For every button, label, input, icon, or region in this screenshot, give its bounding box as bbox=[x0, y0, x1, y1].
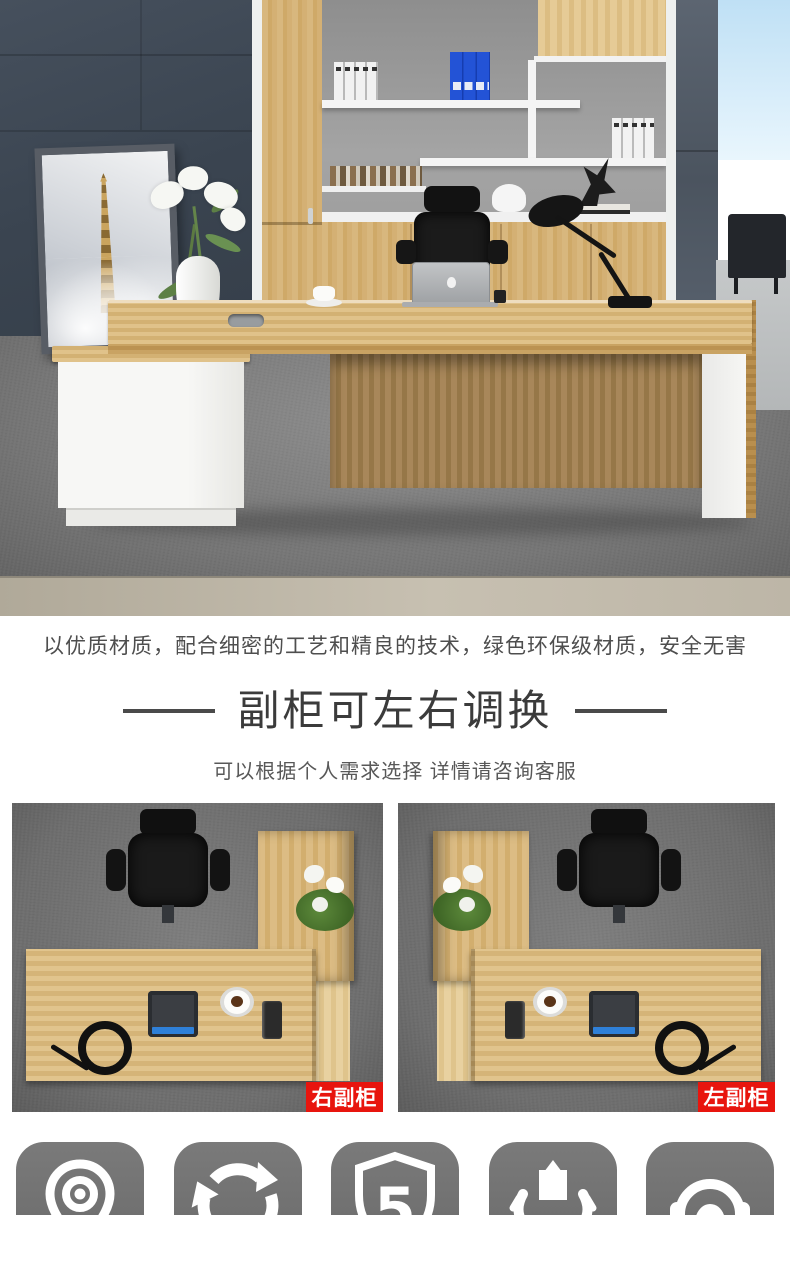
office-chair-top-view bbox=[128, 833, 208, 907]
shield-number: 5 bbox=[374, 1175, 416, 1215]
feature-icons-row: 5 bbox=[0, 1142, 790, 1215]
white-binders bbox=[334, 62, 378, 100]
top-view-scene bbox=[12, 803, 383, 1112]
phone bbox=[505, 1001, 525, 1039]
headset-service-icon bbox=[646, 1142, 774, 1215]
chair-armrest bbox=[488, 240, 508, 264]
title-right-rule bbox=[575, 709, 667, 713]
front-floor-strip bbox=[0, 576, 790, 616]
chair-headrest bbox=[140, 809, 196, 835]
chair-stem bbox=[613, 905, 625, 923]
white-flower bbox=[463, 865, 483, 883]
office-chair-headrest bbox=[424, 186, 480, 212]
section-subtitle: 可以根据个人需求选择 详情请咨询客服 bbox=[0, 755, 790, 784]
desk-accessory bbox=[494, 290, 506, 303]
coffee bbox=[544, 996, 556, 1007]
white-shelf bbox=[322, 100, 580, 108]
blue-binders bbox=[450, 52, 490, 100]
hanging-wood-cabinet bbox=[538, 0, 672, 58]
panel-seam bbox=[676, 150, 718, 152]
product-detail-page: 以优质材质，配合细密的工艺和精良的技术，绿色环保级材质，安全无害 副柜可左右调换… bbox=[0, 0, 790, 1267]
laptop-screen-glow bbox=[593, 1027, 635, 1034]
variant-label-badge: 右副柜 bbox=[306, 1082, 383, 1112]
cabinet-white-edge bbox=[252, 0, 262, 345]
city-buildings bbox=[726, 150, 790, 214]
chair-armrest bbox=[106, 849, 126, 891]
apple-logo-icon bbox=[447, 277, 456, 288]
chair-armrest bbox=[661, 849, 681, 891]
bench-leg bbox=[774, 278, 778, 294]
wall-panel-line bbox=[0, 54, 258, 56]
books-row bbox=[330, 166, 422, 188]
title-left-rule bbox=[123, 709, 215, 713]
white-shelf bbox=[322, 186, 426, 192]
coffee bbox=[231, 996, 243, 1007]
section-title-row: 副柜可左右调换 bbox=[0, 688, 790, 734]
variant-label-badge: 左副柜 bbox=[698, 1082, 775, 1112]
chair-armrest bbox=[396, 240, 416, 264]
hanging-cabinet-lip bbox=[534, 56, 674, 62]
white-flower bbox=[459, 897, 475, 912]
section-title: 副柜可左右调换 bbox=[237, 688, 552, 734]
window-sky bbox=[718, 0, 790, 160]
chair-armrest bbox=[557, 849, 577, 891]
coffee-cup bbox=[313, 286, 335, 301]
desk-lamp-base bbox=[608, 296, 652, 308]
desk-modesty-panel bbox=[330, 354, 702, 488]
chair-headrest bbox=[591, 809, 647, 835]
desk-right-leg bbox=[702, 352, 746, 518]
white-side-cabinet bbox=[58, 362, 244, 508]
wall-panel-line bbox=[0, 130, 258, 132]
hero-office-photo bbox=[0, 0, 790, 616]
window-bench bbox=[728, 214, 786, 278]
white-figurine bbox=[492, 184, 526, 212]
hands-holding-bag-icon bbox=[489, 1142, 617, 1215]
shelf-divider bbox=[528, 60, 536, 160]
cabinet-door-seam bbox=[262, 222, 322, 225]
chair-stem bbox=[162, 905, 174, 923]
laptop-screen bbox=[412, 262, 490, 306]
cabinet-handle bbox=[308, 208, 313, 224]
laptop-screen-glow bbox=[152, 1027, 194, 1034]
wall-panel-line bbox=[140, 0, 142, 130]
location-pin-icon bbox=[16, 1142, 144, 1215]
phone bbox=[262, 1001, 282, 1039]
cable-grommet bbox=[228, 314, 264, 327]
white-flower bbox=[312, 897, 328, 912]
shield-5-icon: 5 bbox=[331, 1142, 459, 1215]
bench-leg bbox=[734, 278, 738, 294]
white-shelf bbox=[420, 158, 666, 166]
variant-photo-left-cabinet: 左副柜 bbox=[398, 803, 775, 1112]
intro-text: 以优质材质，配合细密的工艺和精良的技术，绿色环保级材质，安全无害 bbox=[0, 630, 790, 660]
laptop-base bbox=[402, 302, 498, 307]
top-view-scene-mirrored bbox=[398, 803, 775, 1112]
white-binders bbox=[612, 118, 654, 158]
white-flower bbox=[326, 877, 344, 893]
chair-armrest bbox=[210, 849, 230, 891]
cabinet-plinth bbox=[66, 508, 236, 526]
variant-photo-right-cabinet: 右副柜 bbox=[12, 803, 383, 1112]
office-chair-top-view bbox=[579, 833, 659, 907]
desk-front-edge bbox=[108, 344, 752, 354]
cabinet-white-edge bbox=[666, 0, 676, 300]
recycle-icon bbox=[174, 1142, 302, 1215]
